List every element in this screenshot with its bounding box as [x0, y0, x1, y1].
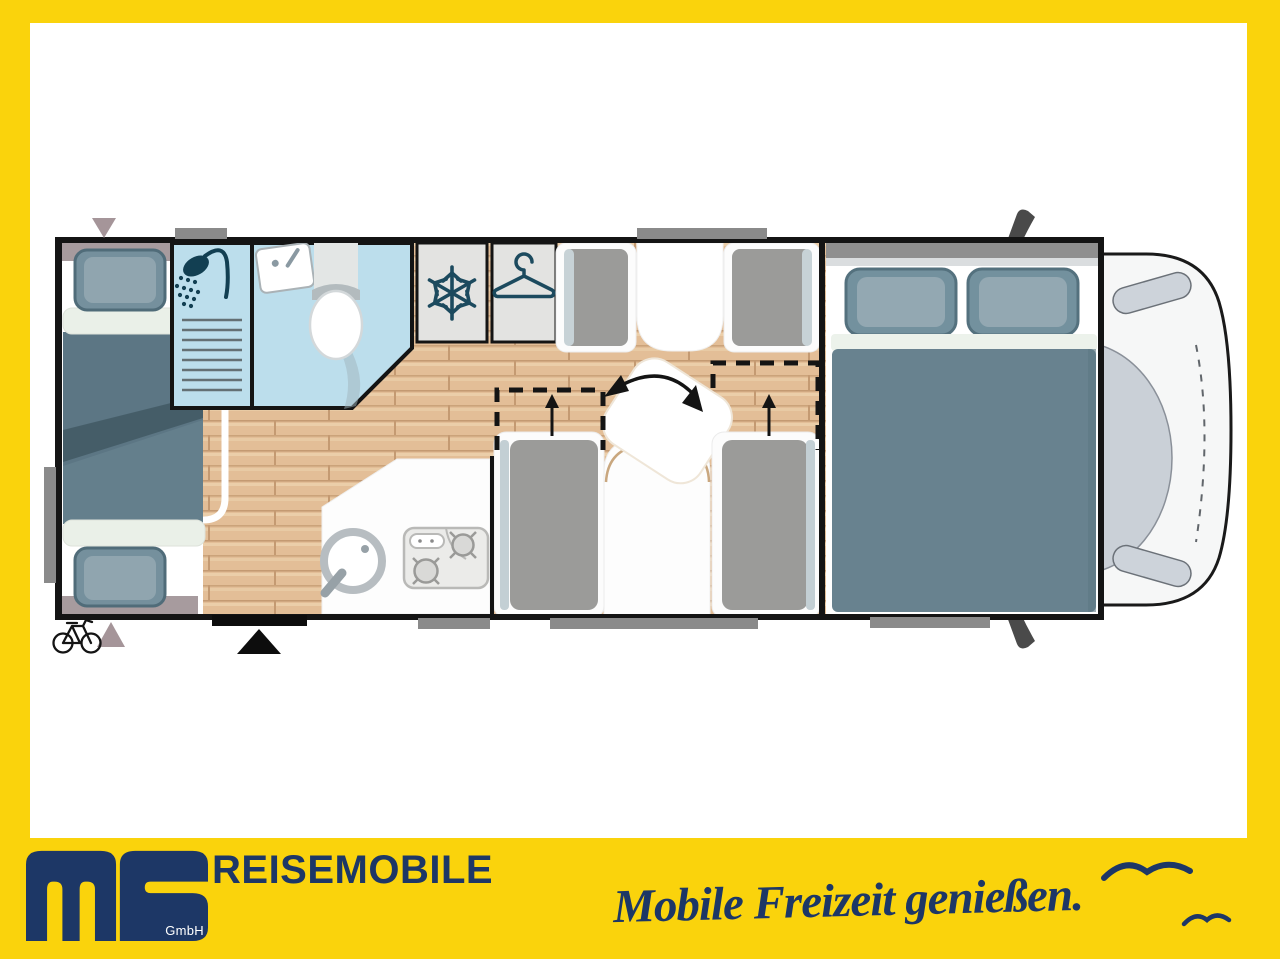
pillow: [75, 548, 165, 606]
dinette-seat: [712, 432, 820, 618]
pillow: [75, 250, 165, 310]
pillow: [846, 269, 956, 335]
dinette-seat: [724, 243, 820, 352]
dinette-seat: [556, 243, 636, 352]
bicycle-icon: [54, 620, 101, 653]
floorplan-graphic: [0, 0, 1280, 959]
wardrobe: [492, 243, 556, 342]
refrigerator: [417, 243, 487, 342]
entry-door-marker: [212, 615, 307, 654]
dinette-table: [637, 243, 723, 351]
seagull-icon: [1184, 916, 1229, 925]
sink-icon: [255, 242, 315, 293]
dinette-seat: [494, 432, 604, 618]
seagull-icon: [1104, 865, 1190, 878]
logo-gmbh-label: GmbH: [148, 923, 204, 938]
sink-icon: [324, 532, 382, 593]
double-bedroom: [826, 240, 1104, 618]
pillow: [968, 269, 1078, 335]
brand-title: REISEMOBILE: [212, 849, 493, 891]
bathroom: [172, 242, 412, 409]
double-bed: [832, 349, 1096, 612]
seagull-icons: [1096, 850, 1246, 945]
rear-marker-icon: [92, 218, 116, 238]
stove-icon: [404, 528, 488, 588]
